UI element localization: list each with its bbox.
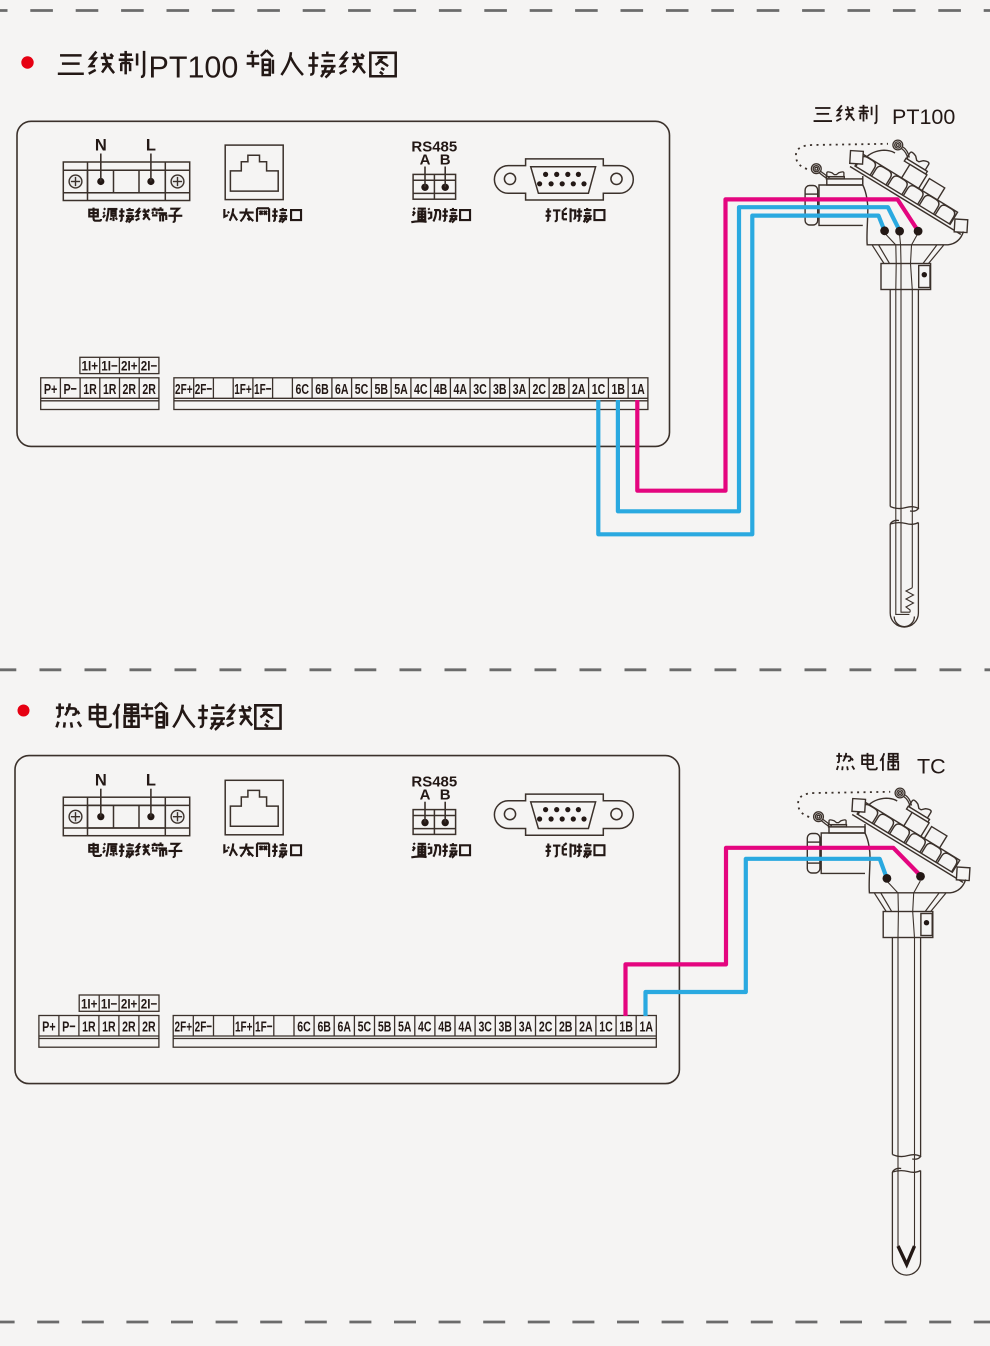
svg-text:1F+: 1F+ — [235, 1019, 253, 1036]
svg-text:4B: 4B — [438, 1019, 452, 1036]
svg-text:3A: 3A — [513, 381, 527, 398]
svg-text:2F+: 2F+ — [175, 1019, 193, 1036]
svg-text:1B: 1B — [619, 1019, 633, 1036]
svg-text:2I−: 2I− — [141, 996, 158, 1011]
svg-text:RS485: RS485 — [411, 774, 457, 791]
svg-text:4A: 4A — [458, 1019, 472, 1036]
svg-text:2A: 2A — [579, 1019, 593, 1036]
svg-text:2I−: 2I− — [141, 359, 158, 374]
svg-text:1R: 1R — [83, 381, 97, 398]
svg-text:3B: 3B — [499, 1019, 513, 1036]
svg-text:2B: 2B — [552, 381, 566, 398]
svg-text:4C: 4C — [414, 381, 428, 398]
svg-text:1C: 1C — [599, 1019, 613, 1036]
svg-text:1C: 1C — [592, 381, 606, 398]
svg-text:PT100: PT100 — [149, 51, 239, 85]
svg-text:L: L — [146, 772, 156, 790]
svg-text:2A: 2A — [572, 381, 586, 398]
svg-text:3C: 3C — [473, 381, 487, 398]
svg-text:2R: 2R — [142, 381, 156, 398]
svg-text:N: N — [95, 772, 107, 790]
svg-text:1I−: 1I− — [101, 359, 118, 374]
svg-text:5C: 5C — [355, 381, 369, 398]
svg-text:RS485: RS485 — [411, 139, 457, 156]
svg-text:2F−: 2F− — [195, 1019, 213, 1036]
svg-text:TC: TC — [917, 755, 946, 779]
svg-text:2C: 2C — [533, 381, 547, 398]
svg-text:3B: 3B — [493, 381, 507, 398]
svg-text:P−: P− — [63, 381, 77, 398]
svg-text:P+: P+ — [42, 1019, 56, 1036]
svg-text:2I+: 2I+ — [121, 359, 138, 374]
svg-text:1A: 1A — [631, 381, 645, 398]
svg-text:2R: 2R — [142, 1019, 156, 1036]
svg-text:1R: 1R — [82, 1019, 96, 1036]
svg-text:6C: 6C — [297, 1019, 311, 1036]
svg-text:5B: 5B — [378, 1019, 392, 1036]
svg-text:N: N — [95, 137, 107, 155]
svg-text:1I−: 1I− — [101, 996, 118, 1011]
svg-text:6B: 6B — [317, 1019, 331, 1036]
svg-text:P+: P+ — [44, 381, 58, 398]
svg-text:1F−: 1F− — [254, 381, 272, 398]
svg-text:5A: 5A — [398, 1019, 412, 1036]
svg-text:3A: 3A — [519, 1019, 533, 1036]
svg-text:1I+: 1I+ — [81, 996, 98, 1011]
svg-text:4A: 4A — [454, 381, 468, 398]
svg-text:6A: 6A — [335, 381, 349, 398]
svg-text:2F+: 2F+ — [175, 381, 193, 398]
svg-text:1R: 1R — [102, 1019, 116, 1036]
svg-text:4B: 4B — [434, 381, 448, 398]
svg-text:PT100: PT100 — [892, 105, 955, 129]
svg-text:P−: P− — [62, 1019, 76, 1036]
svg-text:2R: 2R — [122, 1019, 136, 1036]
svg-text:1F+: 1F+ — [234, 381, 252, 398]
svg-text:5A: 5A — [394, 381, 408, 398]
svg-text:6B: 6B — [315, 381, 329, 398]
svg-text:5C: 5C — [358, 1019, 372, 1036]
svg-text:6A: 6A — [338, 1019, 352, 1036]
svg-text:2C: 2C — [539, 1019, 553, 1036]
svg-text:1B: 1B — [612, 381, 626, 398]
svg-text:1I+: 1I+ — [82, 359, 99, 374]
svg-text:1F−: 1F− — [255, 1019, 273, 1036]
svg-text:2R: 2R — [123, 381, 137, 398]
svg-text:2B: 2B — [559, 1019, 573, 1036]
svg-text:1A: 1A — [640, 1019, 654, 1036]
svg-text:3C: 3C — [478, 1019, 492, 1036]
svg-text:L: L — [146, 137, 156, 155]
svg-text:2I+: 2I+ — [121, 996, 138, 1011]
svg-text:5B: 5B — [375, 381, 389, 398]
svg-text:2F−: 2F− — [195, 381, 213, 398]
svg-text:4C: 4C — [418, 1019, 432, 1036]
svg-text:6C: 6C — [296, 381, 310, 398]
svg-text:1R: 1R — [103, 381, 117, 398]
